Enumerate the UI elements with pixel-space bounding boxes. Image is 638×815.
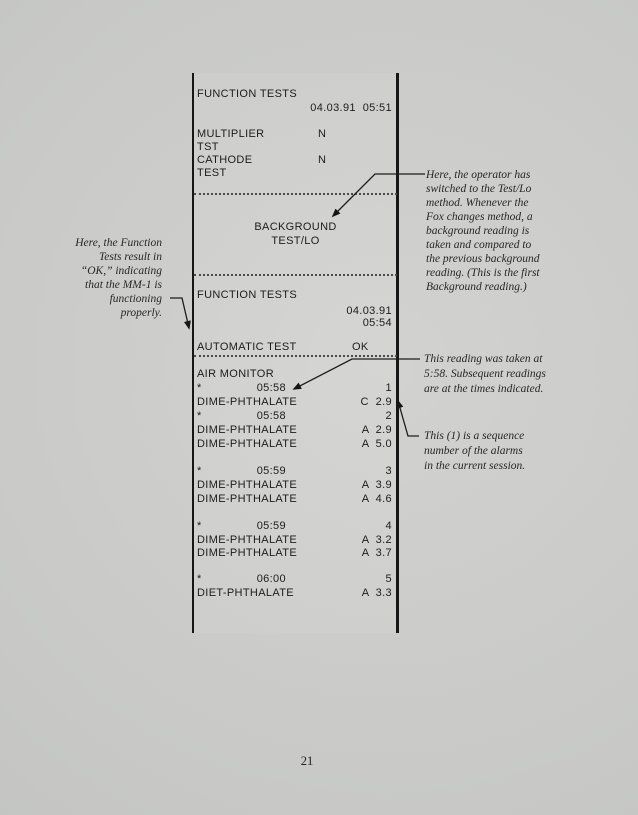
printout-row-alarm: *05:582 <box>197 410 394 423</box>
annotation-line: that the MM-1 is <box>38 278 162 292</box>
printout-reading-value: 04.03.91 05:51 <box>310 102 392 114</box>
printout-row-mid: MULTIPLIERN <box>197 128 394 141</box>
printout-label: * <box>197 520 202 532</box>
annotation-line: number of the alarms <box>424 444 589 459</box>
printout-row-reading: DIME-PHTHALATEC 2.9 <box>197 396 394 409</box>
printout-label: FUNCTION TESTS <box>197 88 297 100</box>
printout-row-reading: DIET-PHTHALATEA 3.3 <box>197 587 394 600</box>
printout-reading-value: 04.03.91 <box>346 305 392 317</box>
printout-separator-dotted <box>194 193 397 195</box>
printout-row-center: TEST/LO <box>197 235 394 248</box>
printout-label: DIME-PHTHALATE <box>197 396 297 408</box>
printout-row-mid: CATHODEN <box>197 154 394 167</box>
annotation-line: This (1) is a sequence <box>424 429 589 444</box>
printout-row-alarm: *05:594 <box>197 520 394 533</box>
annotation-line: in the current session. <box>424 459 589 474</box>
printout-label: * <box>197 382 202 394</box>
printout-reading-value: A 3.7 <box>362 547 392 559</box>
printout-time: 06:00 <box>257 573 286 585</box>
printout-label: DIME-PHTHALATE <box>197 479 297 491</box>
annotation-line: Fox changes method, a <box>426 210 611 224</box>
printout-reading-value: A 3.9 <box>362 479 392 491</box>
printout-separator-dotted <box>194 355 397 357</box>
leader-arrow-function-tests <box>170 298 189 328</box>
printout-reading-value: A 3.2 <box>362 534 392 546</box>
printout-label: DIME-PHTHALATE <box>197 493 297 505</box>
printout-row-left: TEST <box>197 167 394 180</box>
annotation-line: functioning <box>38 292 162 306</box>
printout-row-right: 04.03.91 05:51 <box>197 102 394 115</box>
printout-row-alarm: *05:593 <box>197 465 394 478</box>
leader-arrow-sequence <box>398 401 419 436</box>
printout-reading-value: 5 <box>386 573 392 585</box>
page-number: 21 <box>292 754 322 769</box>
printout-reading-value: C 2.9 <box>361 396 392 408</box>
printout-label: TST <box>197 141 219 153</box>
printout-row-right: 05:54 <box>197 317 394 330</box>
printout-row-alarm: *05:581 <box>197 382 394 395</box>
printout-time: 05:59 <box>257 520 286 532</box>
printout-centered-label: TEST/LO <box>197 235 394 247</box>
annotation-line: are at the times indicated. <box>424 382 614 397</box>
printout-reading-value: 2 <box>386 410 392 422</box>
printout-row-left: FUNCTION TESTS <box>197 88 394 101</box>
printout-label: DIET-PHTHALATE <box>197 587 294 599</box>
printout-label: DIME-PHTHALATE <box>197 424 297 436</box>
annotation-reading-time: This reading was taken at5:58. Subsequen… <box>424 352 614 397</box>
printout-status-value: N <box>318 154 326 166</box>
printout-label: DIME-PHTHALATE <box>197 547 297 559</box>
printout-row-alarm: *06:005 <box>197 573 394 586</box>
annotation-line: This reading was taken at <box>424 352 614 367</box>
annotation-function-tests: Here, the FunctionTests result in“OK,” i… <box>38 236 162 320</box>
annotation-background: Here, the operator hasswitched to the Te… <box>426 168 611 294</box>
annotation-line: 5:58. Subsequent readings <box>424 367 614 382</box>
annotation-line: method. Whenever the <box>426 196 611 210</box>
printout-label: DIME-PHTHALATE <box>197 534 297 546</box>
annotation-line: Here, the Function <box>38 236 162 250</box>
annotation-line: switched to the Test/Lo <box>426 182 611 196</box>
printout-row-reading: DIME-PHTHALATEA 3.9 <box>197 479 394 492</box>
printout-centered-label: BACKGROUND <box>197 221 394 233</box>
annotation-line: “OK,” indicating <box>38 264 162 278</box>
printout-status-value: OK <box>352 341 369 353</box>
printout-reading-value: 4 <box>386 520 392 532</box>
scanned-manual-page: FUNCTION TESTS04.03.91 05:51MULTIPLIERNT… <box>0 0 638 815</box>
printout-label: TEST <box>197 167 227 179</box>
printout-row-left: FUNCTION TESTS <box>197 289 394 302</box>
printout-label: DIME-PHTHALATE <box>197 438 297 450</box>
annotation-line: background reading is <box>426 224 611 238</box>
printout-left-rule <box>192 73 194 633</box>
printout-label: CATHODE <box>197 154 252 166</box>
printout-reading-value: 1 <box>386 382 392 394</box>
printout-reading-value: A 5.0 <box>362 438 392 450</box>
printout-reading-value: A 4.6 <box>362 493 392 505</box>
printout-row-left: AIR MONITOR <box>197 368 394 381</box>
printout-row-reading: DIME-PHTHALATEA 5.0 <box>197 438 394 451</box>
printout-label: * <box>197 465 202 477</box>
printout-time: 05:59 <box>257 465 286 477</box>
annotation-line: Here, the operator has <box>426 168 611 182</box>
annotation-line: properly. <box>38 306 162 320</box>
annotation-line: taken and compared to <box>426 238 611 252</box>
annotation-sequence: This (1) is a sequencenumber of the alar… <box>424 429 589 474</box>
printout-reading-value: A 3.3 <box>362 587 392 599</box>
printout-reading-value: 05:54 <box>363 317 392 329</box>
printout-label: * <box>197 410 202 422</box>
printout-label: MULTIPLIER <box>197 128 264 140</box>
printout-time: 05:58 <box>257 382 286 394</box>
printout-row-mid: AUTOMATIC TESTOK <box>197 341 394 354</box>
printout-label: FUNCTION TESTS <box>197 289 297 301</box>
printout-reading-value: A 2.9 <box>362 424 392 436</box>
printout-row-reading: DIME-PHTHALATEA 3.2 <box>197 534 394 547</box>
printout-label: * <box>197 573 202 585</box>
printout-right-rule <box>396 73 399 633</box>
printout-row-reading: DIME-PHTHALATEA 4.6 <box>197 493 394 506</box>
printout-label: AIR MONITOR <box>197 368 274 380</box>
printout-row-left: TST <box>197 141 394 154</box>
printout-status-value: N <box>318 128 326 140</box>
printout-reading-value: 3 <box>386 465 392 477</box>
printout-label: AUTOMATIC TEST <box>197 341 297 353</box>
annotation-line: Background reading.) <box>426 280 611 294</box>
annotation-line: the previous background <box>426 252 611 266</box>
printout-row-reading: DIME-PHTHALATEA 3.7 <box>197 547 394 560</box>
printout-row-center: BACKGROUND <box>197 221 394 234</box>
annotation-line: reading. (This is the first <box>426 266 611 280</box>
printout-separator-dotted <box>194 274 397 276</box>
printout-time: 05:58 <box>257 410 286 422</box>
annotation-line: Tests result in <box>38 250 162 264</box>
printout-row-reading: DIME-PHTHALATEA 2.9 <box>197 424 394 437</box>
